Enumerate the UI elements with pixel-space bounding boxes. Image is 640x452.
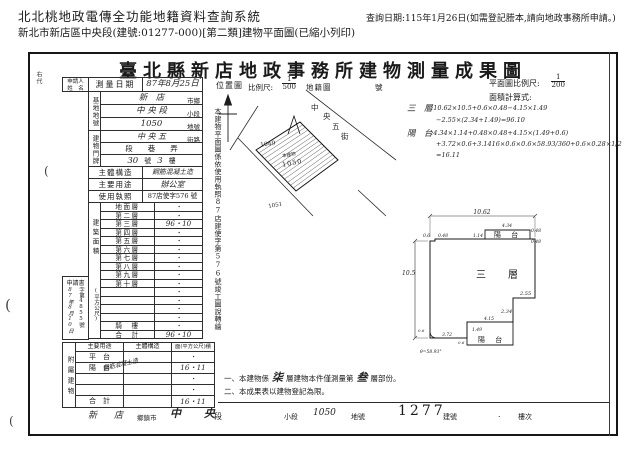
dim-notch-1: 0.6 — [423, 233, 430, 239]
footer-township-value: 新 店 — [88, 408, 127, 421]
street-name-char: 中 — [311, 102, 319, 112]
street-name-char: 街 — [341, 131, 349, 141]
formula-balcony-line3: =16.11 — [436, 151, 460, 159]
balcony-bottom-label: 陽 台 — [478, 335, 506, 344]
annex-side-label: 附屬建物 — [62, 342, 76, 408]
footer-stray-dot: . — [498, 410, 501, 419]
street-name-char: 五 — [332, 122, 340, 131]
application-title: 申請書 — [63, 278, 88, 287]
door-floor-unit: 樓 — [169, 156, 176, 166]
door-floor-value: 3 — [157, 156, 162, 166]
formula-floor-line2: −2.55×(2.34+1.49)=96.10 — [436, 116, 525, 124]
page: 北北桃地政電傳全功能地籍資料查詢系統 查詢日期:115年1月26日(如需登記謄本… — [0, 0, 640, 452]
site-row-township: 新 店 市鄉 — [100, 91, 203, 105]
dim-balcony-top-right1: 0.48 — [531, 228, 541, 234]
subject-building-footprint — [256, 116, 338, 191]
margin-mark: ( — [9, 414, 14, 428]
floor-outline — [430, 239, 535, 338]
dim-top: 10.62 — [473, 209, 490, 216]
dim-left: 10.5 — [402, 270, 416, 277]
dim-bottom-edge: 3.72 — [442, 332, 452, 338]
note1-floor-measured: 叁 — [357, 369, 368, 385]
dim-balcony-top-left: 1.14 — [473, 233, 483, 239]
door-number-value: 30 — [127, 156, 138, 166]
area-unit-label: (平方公尺) — [89, 274, 100, 336]
dim-balcony-bottom-small: 0.6 — [458, 340, 465, 345]
floor-total-value: 96・10 — [154, 330, 203, 340]
dim-step-1: 2.55 — [519, 291, 531, 297]
note1-post: 層部份。 — [371, 373, 401, 384]
site-row-parcel: 1050 地號 — [100, 117, 203, 131]
applicant-box: 申請人 姓 名 — [62, 77, 89, 92]
footer-parcel-value: 1050 — [313, 408, 336, 418]
annex-total-structure — [123, 395, 172, 408]
floor-plan: 10.62 10.5 0.6 0.48 1.14 4.34 0.48 0.48 … — [400, 205, 613, 358]
formula-balcony-line1: :4.34×1.14+0.48×0.48+4.15×(1.49+0.6) — [431, 129, 568, 137]
survey-date-label: 測量日期 — [88, 77, 143, 92]
door-number-unit: 號 — [144, 156, 151, 166]
application-box: 申請書 87年8月10日 字第4855號 — [62, 276, 89, 340]
plan-scale-fraction: 1 200 — [551, 74, 565, 90]
application-number: 字第4855號 — [77, 287, 85, 339]
note1-mid: 層建物本件僅測量第 — [286, 373, 354, 384]
note1-floors-total: 柒 — [272, 369, 283, 385]
area-label: 建築面積 — [89, 206, 100, 270]
footer-parcel-unit: 地號 — [351, 412, 365, 422]
page-subtitle: 新北市新店區中央段(建號:01277-000)[第二類]建物平面圖(已縮小列印) — [18, 25, 355, 40]
footer-township-unit: 鄉鎮市 — [137, 412, 157, 422]
dim-balcony-bottom-width: 4.15 — [483, 316, 494, 322]
location-map: 1049 本建物 1050 1051 中 央 五 街 — [218, 90, 403, 218]
formula-floor-line1: :10.62×10.5+0.6×0.48−4.15×1.49 — [431, 104, 547, 112]
dim-balcony-top-width: 4.34 — [501, 223, 512, 229]
footer-subsection-unit: 小段 — [284, 412, 298, 422]
corner-arc — [430, 331, 437, 338]
dim-step-2: 2.34 — [500, 309, 512, 315]
note-line-2: 二、本成果表以建物登記為限。 — [224, 386, 329, 397]
dim-balcony-top-right2: 0.48 — [531, 239, 541, 245]
north-arrow-icon — [219, 95, 237, 142]
footer-building-unit: 建號 — [443, 412, 457, 422]
plan-scale-label: 平面圖比例尺: — [489, 78, 540, 89]
footer-section-unit: 段 — [214, 411, 222, 422]
margin-mark: ( — [5, 296, 11, 314]
system-title: 北北桃地政電傳全功能地籍資料查詢系統 — [18, 6, 261, 25]
side-code: 右代 — [34, 71, 43, 85]
footer-building-number: 1277 — [398, 403, 446, 419]
formula-balcony-line2: +3.72×0.6+3.1416×0.6×0.6×58.93/360+0.6×0… — [436, 140, 622, 148]
formula-balcony-label: 陽 台 — [407, 127, 433, 139]
note-line-1: 一、本建物係 柒 層建物本件僅測量第 叁 層部份。 — [224, 369, 401, 385]
street-name-char: 央 — [323, 111, 331, 121]
footer-floor-unit: 樓次 — [518, 412, 532, 422]
dim-notch-2: 0.48 — [438, 233, 448, 239]
room-label: 三 層 — [476, 269, 524, 281]
floor-total-label: 合 計 — [100, 330, 155, 340]
applicant-label-line2: 姓 名 — [63, 86, 88, 92]
area-calc-label: 面積計算式: — [489, 92, 532, 103]
annex-total-label: 合 計 — [75, 395, 124, 408]
dim-corner: 0.6 — [418, 328, 425, 333]
dim-angle: θ=58.93° — [420, 349, 442, 355]
site-row-section: 中 央 段 小段 — [100, 104, 203, 118]
plan-scale-denominator: 200 — [552, 82, 565, 89]
note1-pre: 一、本建物係 — [224, 373, 269, 384]
survey-date-value: 87年8月25日 — [142, 77, 203, 92]
formula-floor-label: 三 層 — [407, 102, 433, 114]
dim-balcony-bottom-left: 1.49 — [472, 327, 482, 333]
balcony-top-label: 陽 台 — [494, 230, 522, 239]
query-date: 查詢日期:115年1月26日(如需登記謄本,請向地政事務所申請。) — [366, 11, 616, 24]
parcel-label-1051: 1051 — [268, 202, 283, 210]
application-date: 87年8月10日 — [66, 287, 74, 339]
